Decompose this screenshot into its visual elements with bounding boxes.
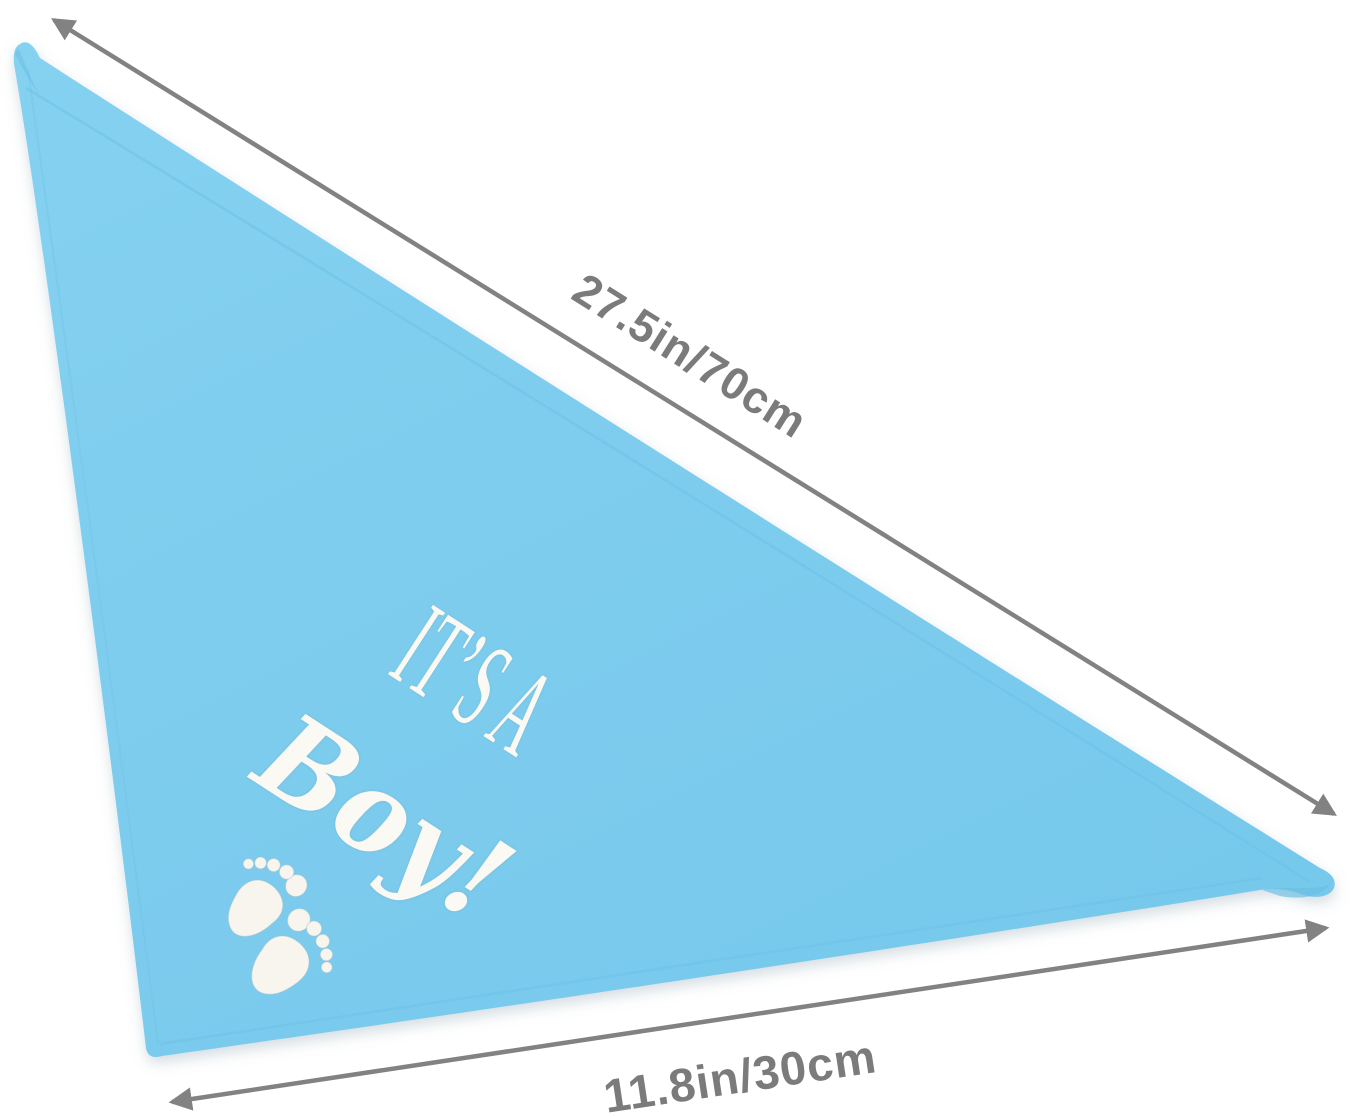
product-image: IT’S A Boy! 27.5in/70cm 11.8in/30cm: [0, 0, 1356, 1117]
bandana-graphic: [0, 0, 1356, 1117]
bandana-fabric: [14, 42, 1335, 1057]
bandana-triangle: [14, 42, 1335, 1057]
